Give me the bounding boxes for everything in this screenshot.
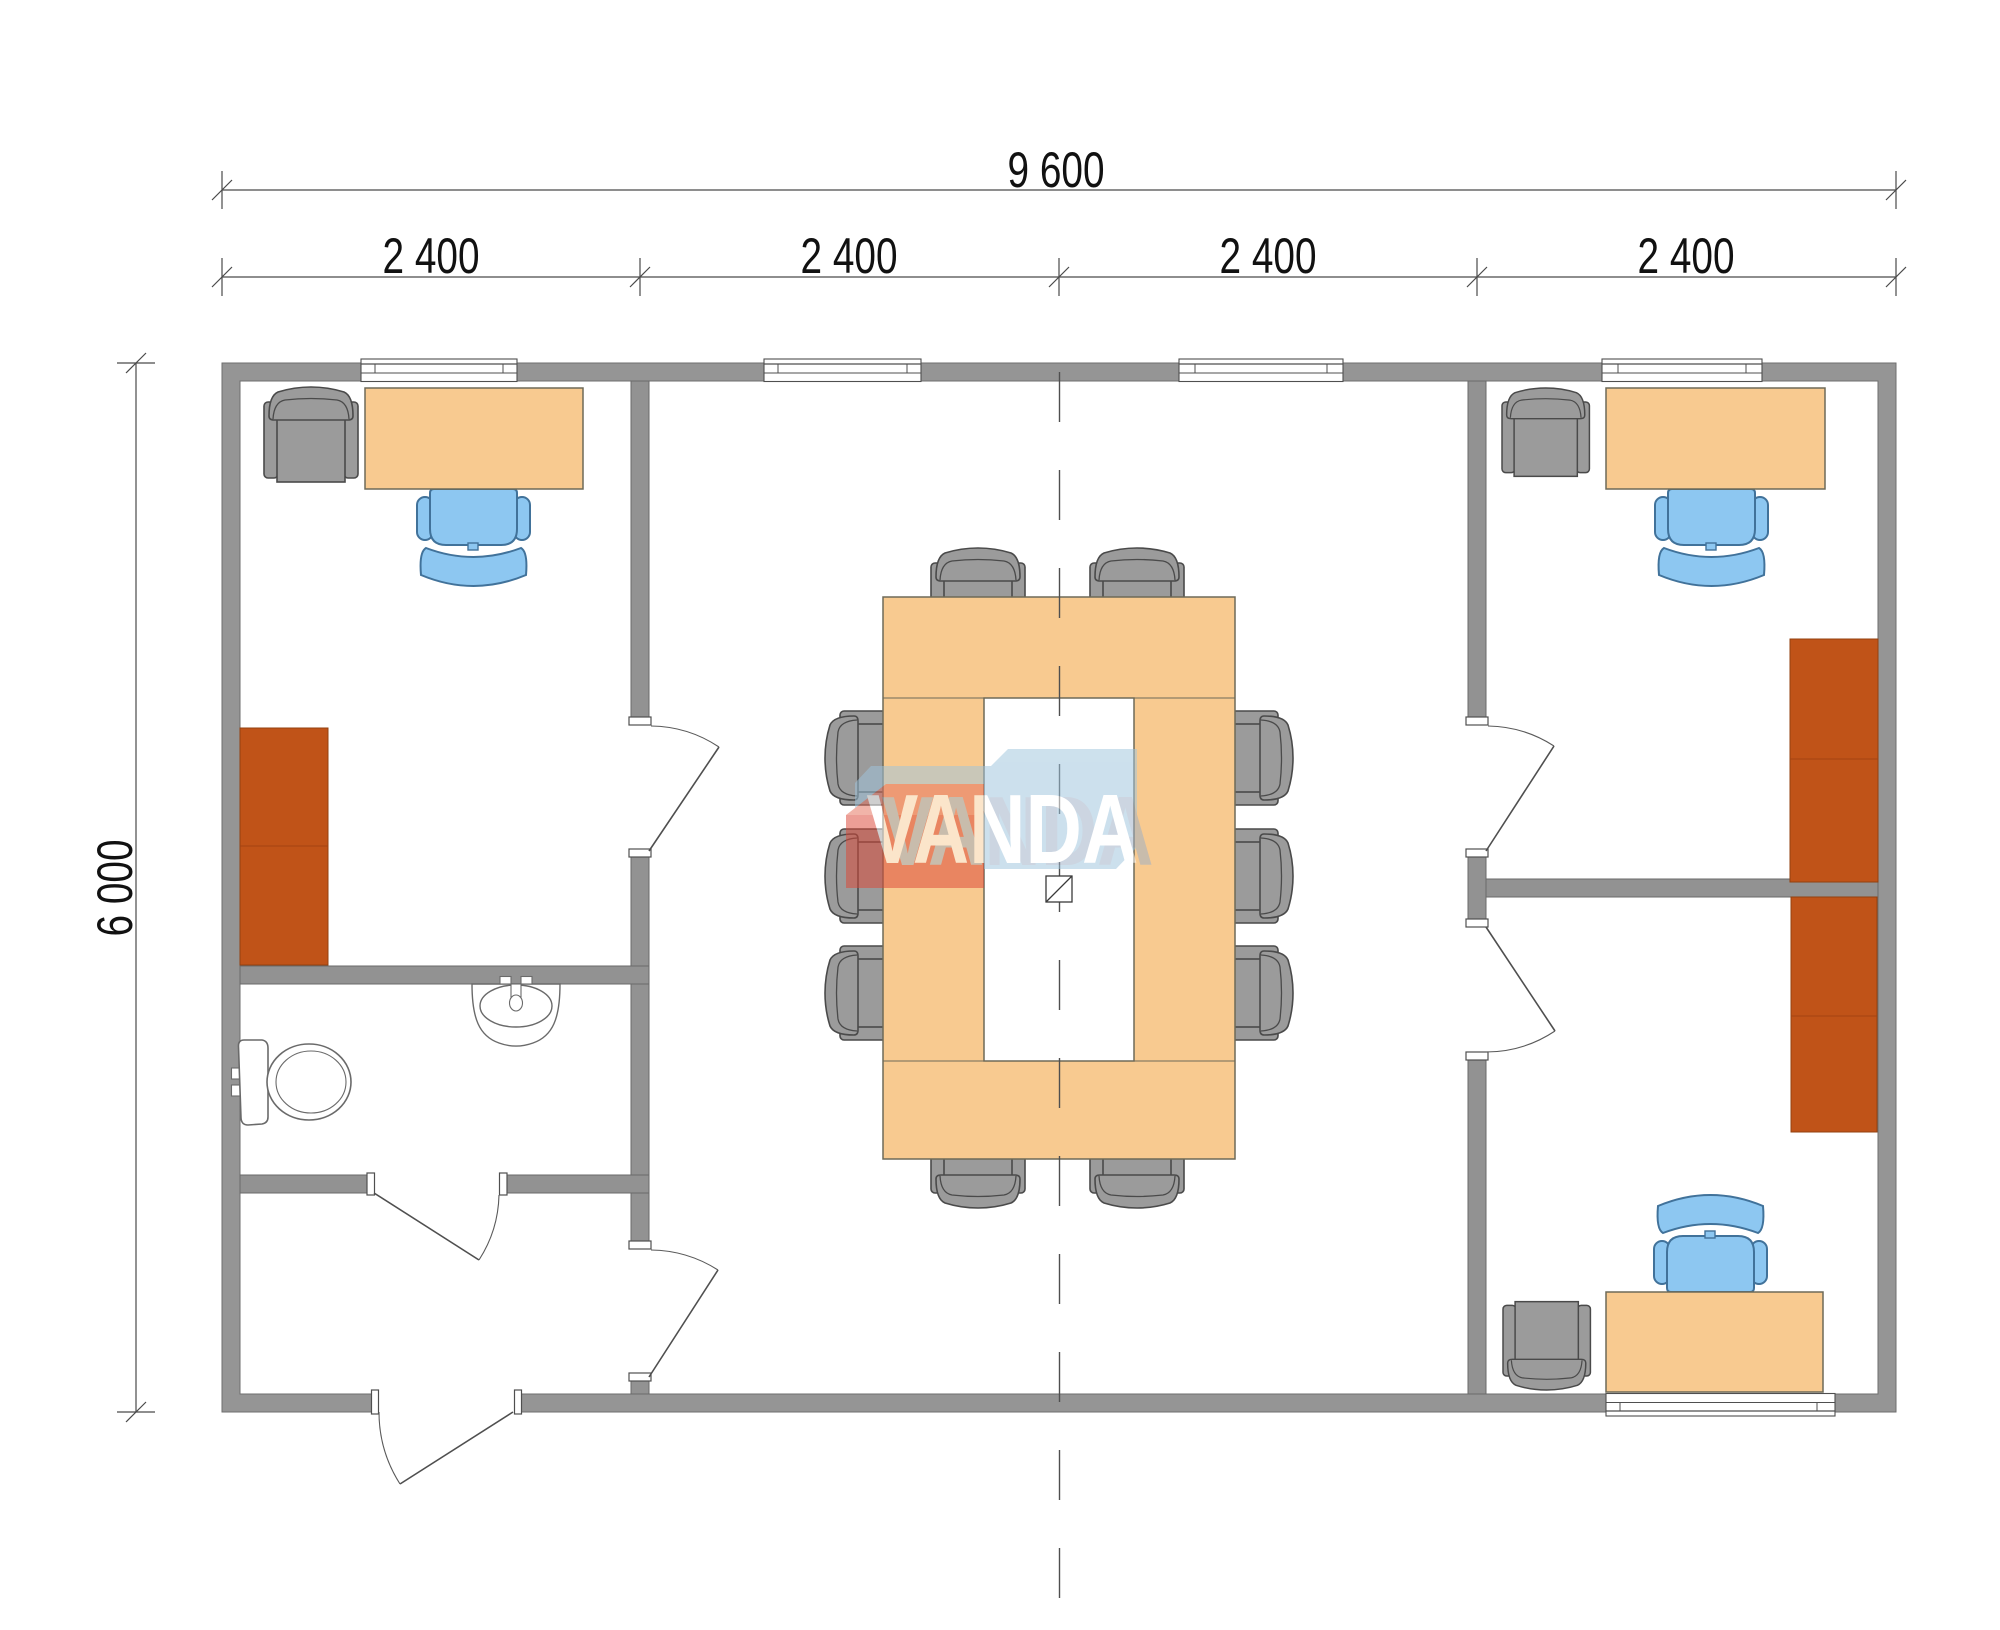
svg-text:2 400: 2 400	[1638, 228, 1735, 284]
svg-text:2 400: 2 400	[801, 228, 898, 284]
svg-text:2 400: 2 400	[383, 228, 480, 284]
svg-text:9 600: 9 600	[1008, 142, 1105, 198]
svg-text:2 400: 2 400	[1220, 228, 1317, 284]
svg-text:VANDA: VANDA	[866, 775, 1138, 884]
svg-text:6 000: 6 000	[87, 840, 143, 937]
